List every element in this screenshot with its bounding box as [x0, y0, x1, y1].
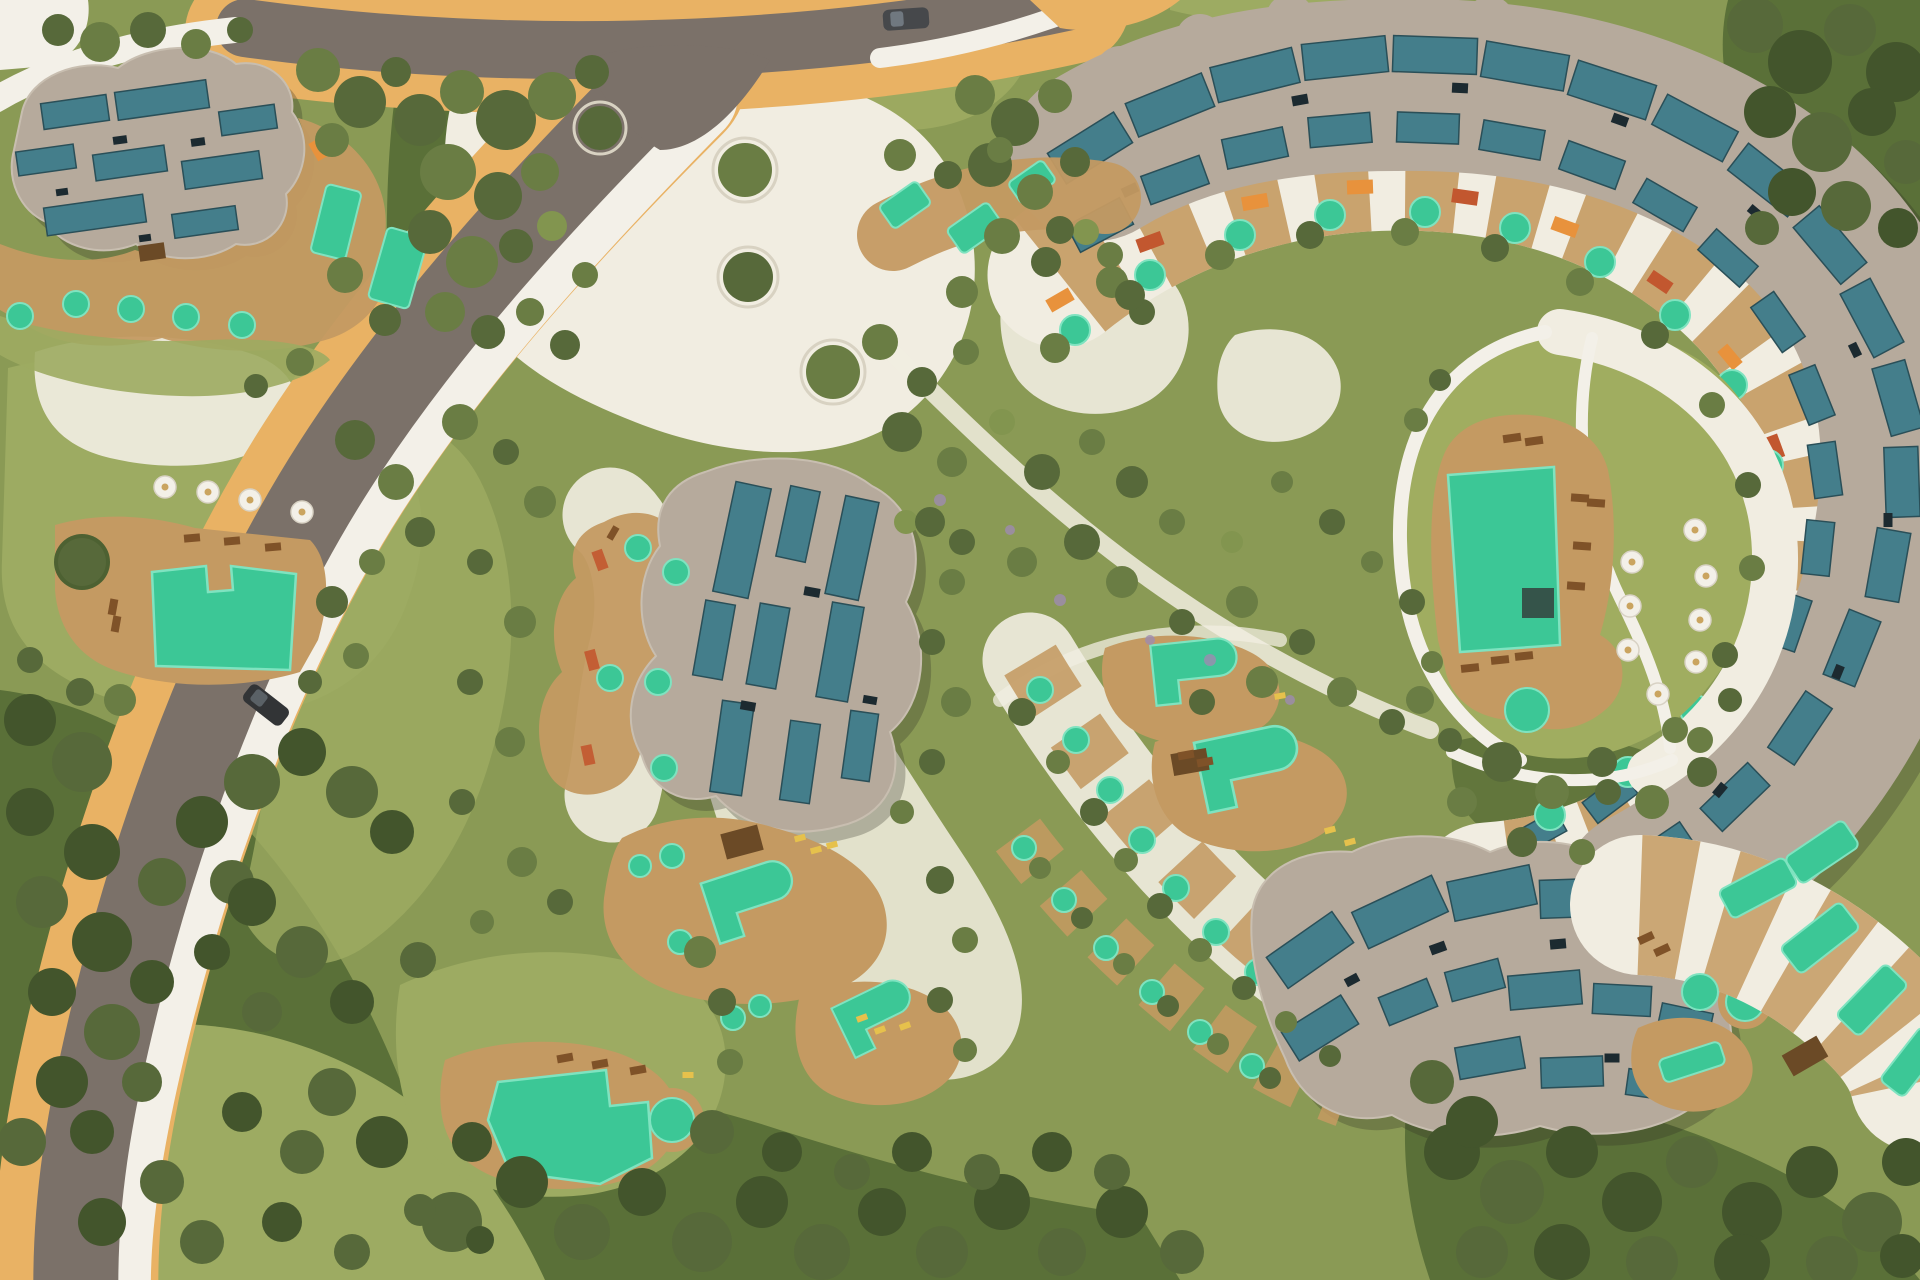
trees	[1327, 677, 1357, 707]
trees	[718, 143, 772, 197]
roof-hatches	[1605, 1054, 1620, 1063]
trees	[537, 211, 567, 241]
car-top-road-body	[882, 7, 929, 31]
trees	[1421, 651, 1443, 673]
trees	[1546, 1126, 1598, 1178]
trees	[1205, 240, 1235, 270]
solar-panels	[1540, 1056, 1603, 1088]
trees	[1008, 698, 1036, 726]
trees	[1296, 221, 1324, 249]
trees	[370, 810, 414, 854]
trees	[1399, 589, 1425, 615]
trees	[474, 172, 522, 220]
trees	[227, 17, 253, 43]
trees	[296, 48, 340, 92]
trees	[946, 276, 978, 308]
flower-bushes	[1285, 695, 1295, 705]
trees	[1379, 709, 1405, 735]
trees	[894, 510, 918, 534]
trees	[176, 796, 228, 848]
trees	[884, 139, 916, 171]
trees	[882, 412, 922, 452]
trees	[762, 1132, 802, 1172]
trees	[1046, 750, 1070, 774]
trees	[1246, 666, 1278, 698]
trees	[1096, 1186, 1148, 1238]
trees	[4, 694, 56, 746]
trees	[276, 926, 328, 978]
trees	[28, 968, 76, 1016]
spa-pools	[660, 844, 684, 868]
trees	[0, 1118, 46, 1166]
trees	[1169, 609, 1195, 635]
trees	[964, 1154, 1000, 1190]
trees	[1482, 742, 1522, 782]
trees	[1447, 787, 1477, 817]
brown-loungers	[265, 542, 282, 551]
trees	[1848, 88, 1896, 136]
parasol-poles	[1629, 559, 1636, 566]
trees	[521, 153, 559, 191]
parasol-poles	[205, 489, 212, 496]
terrace-spa-pools	[663, 559, 689, 585]
trees	[1744, 86, 1796, 138]
trees	[452, 1122, 492, 1162]
trees	[1404, 408, 1428, 432]
trees	[516, 298, 544, 326]
chain-spa-pools	[1063, 727, 1089, 753]
trees	[1481, 234, 1509, 262]
pool-platform	[1522, 588, 1554, 618]
chain-spa-pools	[1052, 888, 1076, 912]
trees	[1722, 1182, 1782, 1242]
spa-pools	[749, 995, 771, 1017]
trees	[80, 22, 120, 62]
trees	[858, 1188, 906, 1236]
trees	[1687, 727, 1713, 753]
trees	[1391, 218, 1419, 246]
trees	[794, 1224, 850, 1280]
trees	[723, 252, 773, 302]
trees	[934, 161, 962, 189]
trees	[228, 878, 276, 926]
chain-spa-pools	[1012, 836, 1036, 860]
trees	[316, 586, 348, 618]
trees	[890, 800, 914, 824]
trees	[280, 1130, 324, 1174]
trees	[1031, 247, 1061, 277]
spa-pools	[629, 855, 651, 877]
trees	[1157, 995, 1179, 1017]
trees	[1232, 976, 1256, 1000]
trees	[457, 669, 483, 695]
trees	[717, 1049, 743, 1075]
trees	[1587, 747, 1617, 777]
trees	[1160, 1230, 1204, 1274]
trees	[493, 439, 519, 465]
trees	[1410, 1060, 1454, 1104]
trees	[907, 367, 937, 397]
trees	[919, 749, 945, 775]
trees	[449, 789, 475, 815]
main-pool	[1448, 467, 1560, 652]
trees	[1786, 1146, 1838, 1198]
trees	[1712, 642, 1738, 668]
ring-panels-inner	[1801, 520, 1834, 577]
parasol-poles	[1697, 617, 1704, 624]
solar-panels	[1508, 970, 1583, 1010]
trees	[1116, 466, 1148, 498]
trees	[1207, 1033, 1229, 1055]
brown-loungers	[1587, 498, 1606, 507]
trees	[122, 1062, 162, 1102]
terrace-spa-pools	[645, 669, 671, 695]
trees	[420, 144, 476, 200]
ring-panels-outer	[1392, 36, 1477, 75]
trees	[1114, 848, 1138, 872]
terrace-plunge-pools	[173, 304, 199, 330]
trees	[1259, 1067, 1281, 1089]
trees	[394, 94, 446, 146]
brown-loungers	[1573, 541, 1592, 550]
trees	[984, 218, 1020, 254]
trees	[84, 1004, 140, 1060]
yellow-loungers	[683, 1072, 694, 1078]
trees	[496, 1156, 548, 1208]
trees	[1073, 219, 1099, 245]
ring-roof-hatches	[1884, 513, 1893, 527]
trees	[1007, 547, 1037, 577]
trees	[1319, 509, 1345, 535]
trees	[1792, 112, 1852, 172]
trees	[1507, 827, 1537, 857]
trees	[17, 647, 43, 673]
trees	[16, 876, 68, 928]
ring-panels-inner	[1396, 112, 1459, 144]
round-pool	[1682, 974, 1718, 1010]
trees	[1768, 168, 1816, 216]
trees	[359, 549, 385, 575]
trees	[575, 55, 609, 89]
trees	[1275, 1011, 1297, 1033]
trees	[578, 106, 622, 150]
trees	[1595, 779, 1621, 805]
trees	[1566, 268, 1594, 296]
trees	[504, 606, 536, 638]
trees	[1106, 566, 1138, 598]
ring-roof-hatches	[1452, 83, 1469, 94]
trees	[1446, 1096, 1498, 1148]
brown-loungers	[1567, 581, 1586, 590]
terrace-awnings	[1347, 180, 1373, 195]
terrace-plunge-pools	[229, 312, 255, 338]
trees	[834, 1154, 870, 1190]
trees	[1662, 717, 1688, 743]
trees	[1271, 471, 1293, 493]
trees	[315, 123, 349, 157]
chain-spa-pools	[1097, 777, 1123, 803]
trees	[916, 1226, 968, 1278]
trees	[381, 57, 411, 87]
trees	[36, 1056, 88, 1108]
trees	[1159, 509, 1185, 535]
trees	[949, 529, 975, 555]
trees	[70, 1110, 114, 1154]
trees	[572, 262, 598, 288]
trees	[400, 942, 436, 978]
trees	[1534, 1224, 1590, 1280]
trees	[446, 236, 498, 288]
trees	[1361, 551, 1383, 573]
site-svg	[0, 0, 1920, 1280]
trees	[708, 988, 736, 1016]
trees	[467, 549, 493, 575]
trees	[937, 447, 967, 477]
terrace-spa-pools	[651, 755, 677, 781]
chain-spa-pools	[1027, 677, 1053, 703]
round-pool	[1505, 688, 1549, 732]
ring-panels-inner	[1308, 112, 1372, 147]
trees	[1480, 1160, 1544, 1224]
parasol-poles	[1627, 603, 1634, 610]
trees	[926, 866, 954, 894]
trees	[1745, 211, 1779, 245]
trees	[953, 339, 979, 365]
trees	[1038, 79, 1072, 113]
trees	[1029, 857, 1051, 879]
flower-bushes	[1054, 594, 1066, 606]
trees	[618, 1168, 666, 1216]
trees	[1429, 369, 1451, 391]
trees	[242, 992, 282, 1032]
trees	[104, 684, 136, 716]
flower-bushes	[1204, 654, 1216, 666]
trees	[953, 1038, 977, 1062]
trees	[1878, 208, 1918, 248]
center-building	[539, 458, 931, 843]
trees	[1666, 1136, 1718, 1188]
trees	[404, 1194, 436, 1226]
trees	[1189, 689, 1215, 715]
trees	[405, 517, 435, 547]
trees	[298, 670, 322, 694]
trees	[1046, 216, 1074, 244]
trees	[1115, 280, 1145, 310]
trees	[524, 486, 556, 518]
trees	[286, 348, 314, 376]
trees	[425, 292, 465, 332]
trees	[369, 304, 401, 336]
trees	[1040, 333, 1070, 363]
trees	[224, 754, 280, 810]
trees	[1699, 392, 1725, 418]
trees	[806, 345, 860, 399]
chain-spa-pools	[1094, 936, 1118, 960]
parasol-poles	[1703, 573, 1710, 580]
parasol-poles	[1655, 691, 1662, 698]
trees	[72, 912, 132, 972]
trees	[941, 687, 971, 717]
trees	[1406, 686, 1434, 714]
trees	[736, 1176, 788, 1228]
trees	[1024, 454, 1060, 490]
trees	[1641, 321, 1669, 349]
aerial-render-stage	[0, 0, 1920, 1280]
trees	[1824, 4, 1876, 56]
trees	[244, 374, 268, 398]
trees	[181, 29, 211, 59]
trees	[194, 934, 230, 970]
trees	[1635, 785, 1669, 819]
trees	[1739, 555, 1765, 581]
trees	[547, 889, 573, 915]
spa-pool	[650, 1098, 694, 1142]
terrace-plunge-pools	[118, 296, 144, 322]
trees	[408, 210, 452, 254]
trees	[987, 137, 1013, 163]
trees	[1821, 181, 1871, 231]
trees	[1226, 586, 1258, 618]
car-top-road-glass	[890, 11, 904, 27]
trees	[330, 980, 374, 1024]
trees	[952, 927, 978, 953]
trees	[138, 858, 186, 906]
trees	[1113, 953, 1135, 975]
trees	[1017, 174, 1053, 210]
trees	[1602, 1172, 1662, 1232]
trees	[6, 788, 54, 836]
trees	[507, 847, 537, 877]
trees	[1687, 757, 1717, 787]
trees	[892, 1132, 932, 1172]
trees	[1438, 728, 1462, 752]
trees	[442, 404, 478, 440]
trees	[476, 90, 536, 150]
trees	[130, 960, 174, 1004]
trees	[356, 1116, 408, 1168]
trees	[1289, 629, 1315, 655]
trees	[862, 324, 898, 360]
trees	[919, 629, 945, 655]
trees	[335, 420, 375, 460]
trees	[334, 76, 386, 128]
trees	[1718, 688, 1742, 712]
terrace-spa-pools	[625, 535, 651, 561]
trees	[326, 766, 378, 818]
trees	[1147, 893, 1173, 919]
trees	[528, 72, 576, 120]
trees	[1080, 798, 1108, 826]
terrace-spa-pools	[597, 665, 623, 691]
parasol-poles	[1692, 527, 1699, 534]
trees	[989, 409, 1015, 435]
trees	[1535, 775, 1569, 809]
parasol-poles	[1625, 647, 1632, 654]
chain-spa-pools	[1129, 827, 1155, 853]
flower-bushes	[934, 494, 946, 506]
trees	[1188, 938, 1212, 962]
trees	[327, 257, 363, 293]
ring-panels-outer	[1884, 446, 1920, 517]
trees	[1319, 1045, 1341, 1067]
trees	[466, 1226, 494, 1254]
trees	[495, 727, 525, 757]
trees	[955, 75, 995, 115]
trees	[378, 464, 414, 500]
trees	[140, 1160, 184, 1204]
trees	[130, 12, 166, 48]
trees	[262, 1202, 302, 1242]
trees	[42, 14, 74, 46]
trees	[440, 70, 484, 114]
trees	[58, 538, 106, 586]
terrace-plunge-pools	[63, 291, 89, 317]
trees	[308, 1068, 356, 1116]
trees	[554, 1204, 610, 1260]
brown-loungers	[184, 533, 201, 542]
trees	[690, 1110, 734, 1154]
parasol-poles	[247, 497, 254, 504]
parasol-poles	[162, 484, 169, 491]
trees	[1569, 839, 1595, 865]
trees	[1768, 30, 1832, 94]
trees	[78, 1198, 126, 1246]
trees	[180, 1220, 224, 1264]
trees	[278, 728, 326, 776]
flower-bushes	[1145, 635, 1155, 645]
trees	[1060, 147, 1090, 177]
trees	[66, 678, 94, 706]
trees	[470, 910, 494, 934]
trees	[1071, 907, 1093, 929]
terrace-plunge-pools	[7, 303, 33, 329]
trees	[1456, 1226, 1508, 1278]
ring-panels-outer	[1301, 36, 1388, 81]
brown-loungers	[224, 536, 241, 545]
flower-bushes	[1005, 525, 1015, 535]
parasol-poles	[299, 509, 306, 516]
trees	[684, 936, 716, 968]
trees	[334, 1234, 370, 1270]
trees	[499, 229, 533, 263]
trees	[471, 315, 505, 349]
trees	[939, 569, 965, 595]
trees	[1038, 1228, 1086, 1276]
trees	[1735, 472, 1761, 498]
roof-hatches	[1550, 938, 1567, 949]
trees	[550, 330, 580, 360]
trees	[672, 1212, 732, 1272]
trees	[1094, 1154, 1130, 1190]
brown-loungers	[1571, 493, 1590, 502]
trees	[927, 987, 953, 1013]
solar-panels	[1592, 984, 1651, 1017]
trees	[1221, 531, 1243, 553]
trees	[915, 507, 945, 537]
trees	[222, 1092, 262, 1132]
trees	[1079, 429, 1105, 455]
trees	[1064, 524, 1100, 560]
trees	[52, 732, 112, 792]
parasol-poles	[1693, 659, 1700, 666]
trees	[343, 643, 369, 669]
trees	[1097, 242, 1123, 268]
trees	[1032, 1132, 1072, 1172]
trees	[64, 824, 120, 880]
